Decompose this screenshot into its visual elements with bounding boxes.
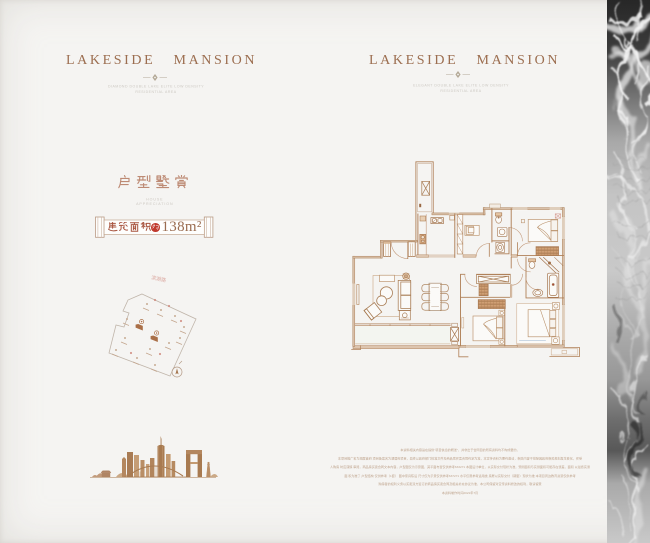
svg-text:滨湖路: 滨湖路 (151, 274, 167, 284)
